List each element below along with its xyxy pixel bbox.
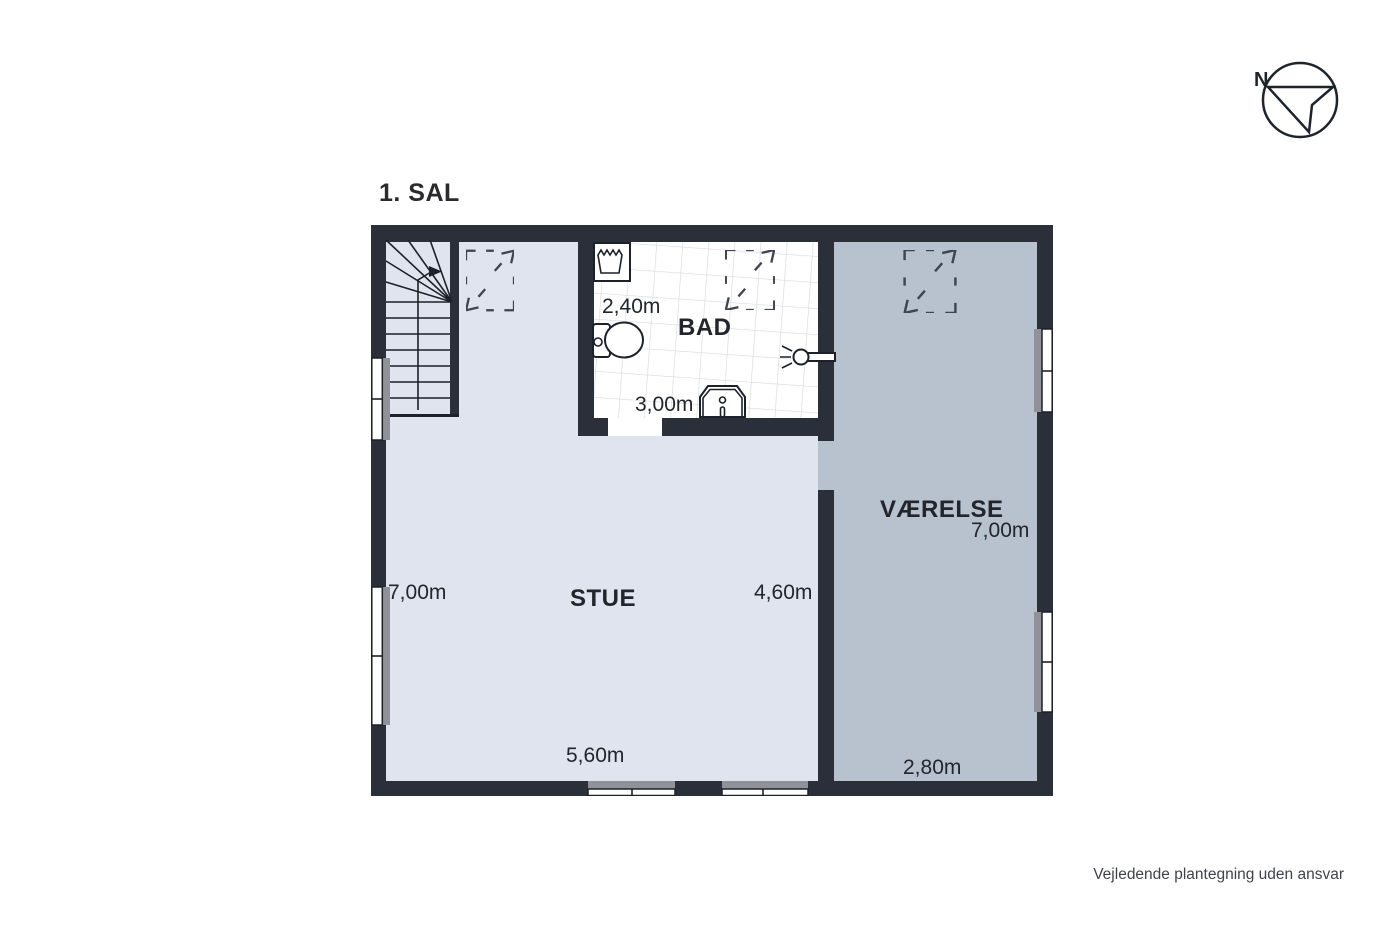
stue-left-dimension: 7,00m [388,582,446,604]
north-arrow-icon [1268,87,1333,132]
window [1034,612,1052,712]
window [372,587,390,725]
toilet-icon [593,323,643,358]
window [722,781,808,796]
stue-right-dimension: 4,60m [754,582,812,604]
stue-room-label: STUE [570,585,636,613]
window [372,358,390,440]
compass-north-label: N [1254,69,1268,91]
bad-right-wall [818,242,834,441]
floor-title: 1. SAL [379,179,460,208]
sink-icon [700,386,745,417]
vaerelse-height-dimension: 7,00m [971,520,1029,542]
bad-room-label: BAD [678,314,732,342]
vaerelse-bottom-dimension: 2,80m [903,757,961,779]
stue-bottom-dimension: 5,60m [566,745,624,767]
stue-vaerelse-wall [818,490,834,781]
compass: N [1245,55,1355,150]
laundry-tub-icon [594,243,630,281]
window [1034,329,1052,412]
bad-door-opening [608,418,662,436]
disclaimer-text: Vejledende plantegning uden ansvar [1093,866,1344,884]
bad-left-wall [578,242,594,436]
floorplan-canvas: 1. SAL [0,0,1400,933]
bad-width-dimension: 2,40m [602,296,660,318]
bad-bottom-dimension: 3,00m [635,394,693,416]
window [588,781,675,796]
